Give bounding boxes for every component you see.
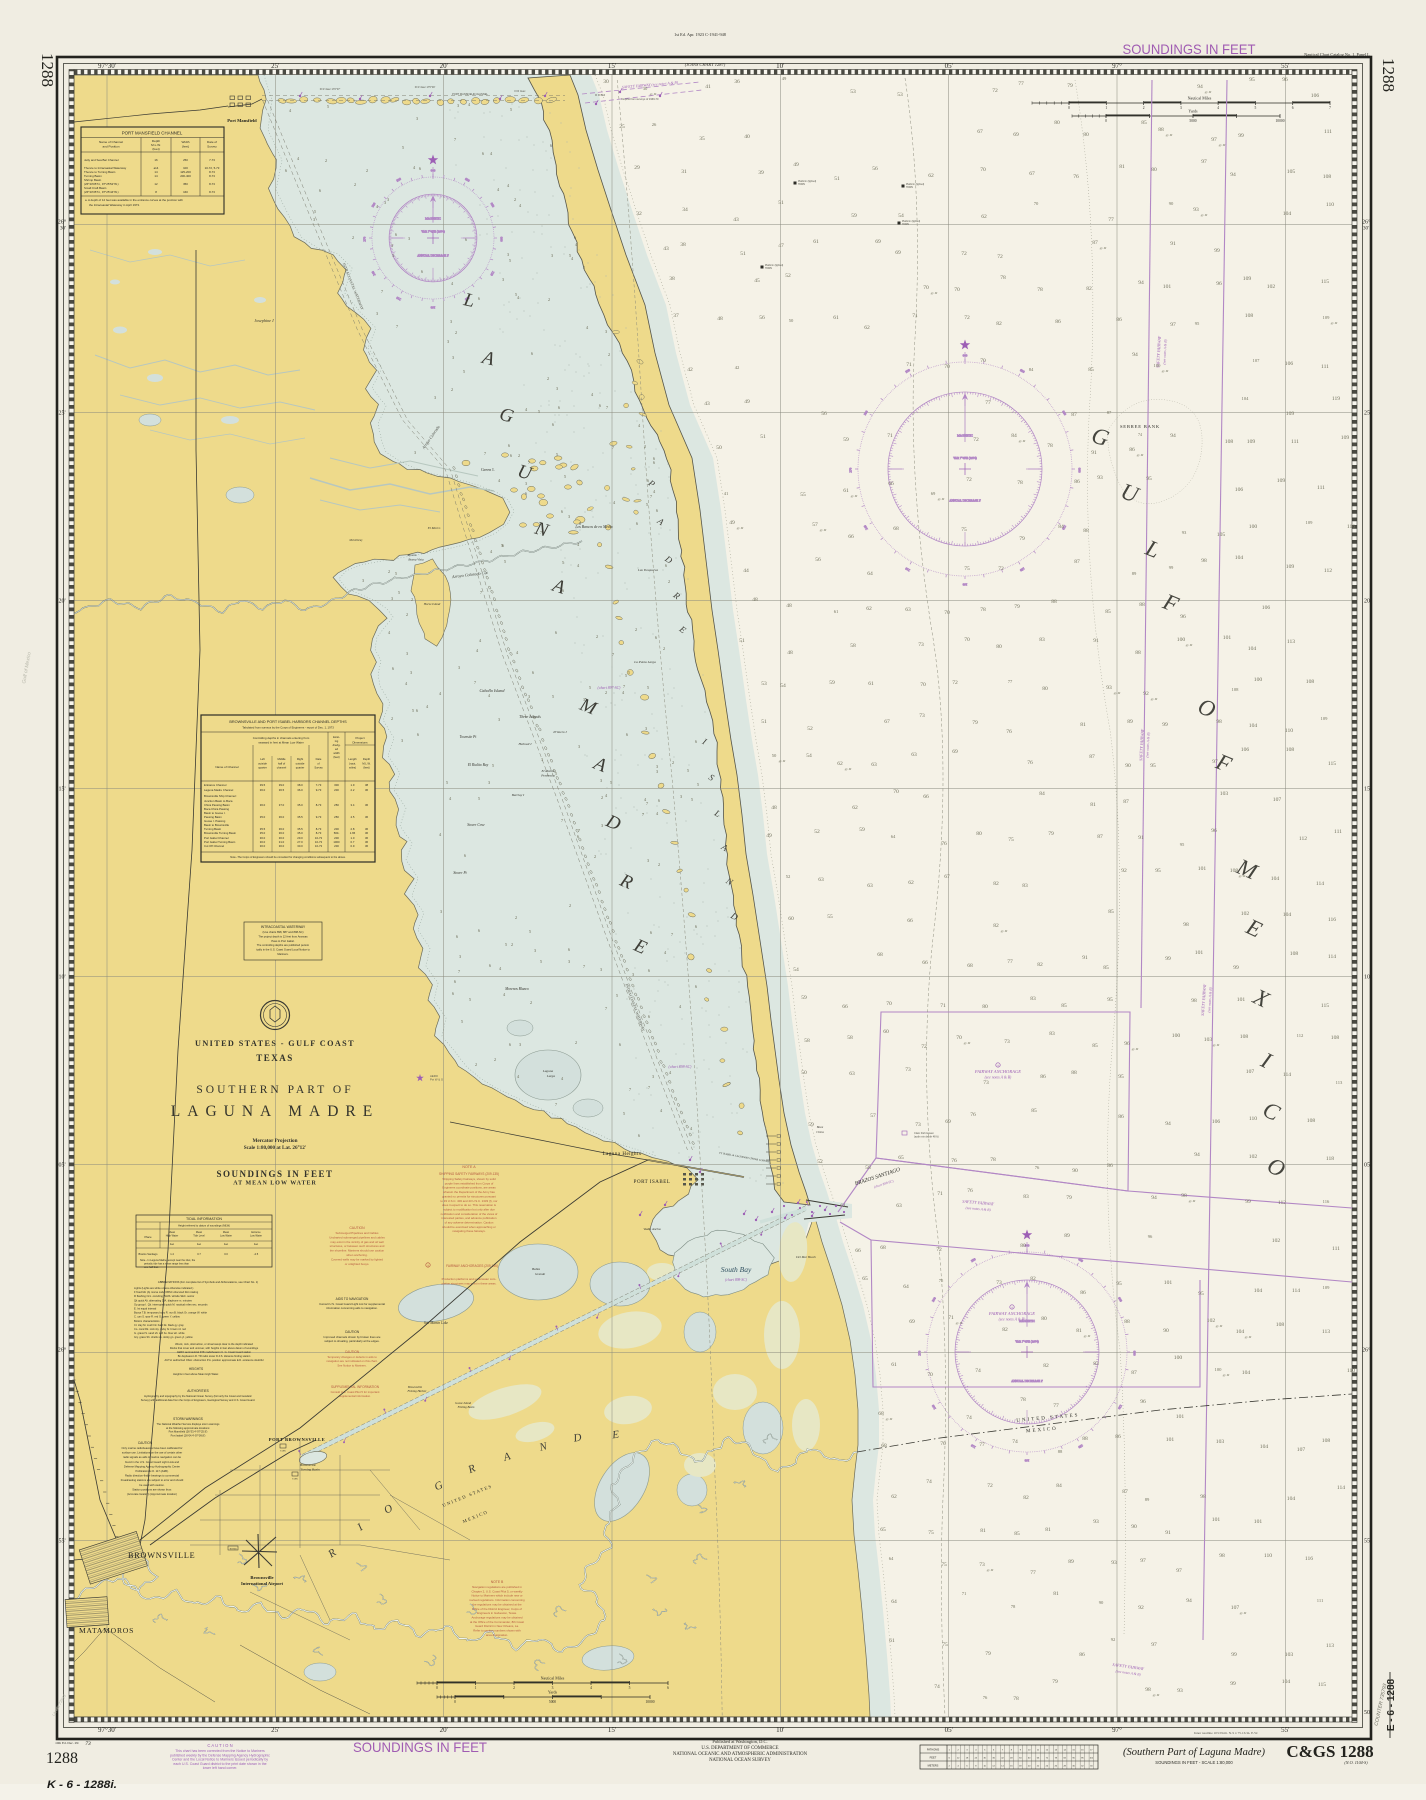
svg-text:1: 1	[1105, 106, 1107, 110]
svg-text:(chart 898-SC): (chart 898-SC)	[725, 1278, 747, 1282]
svg-text:(see notes A & B): (see notes A & B)	[985, 1076, 1012, 1080]
svg-text:96: 96	[1211, 828, 1217, 834]
svg-text:115: 115	[1328, 761, 1336, 767]
svg-text:12: 12	[154, 182, 158, 186]
svg-text:35.5: 35.5	[297, 815, 303, 819]
svg-text:108: 108	[1331, 1035, 1340, 1041]
svg-text:54: 54	[806, 753, 812, 759]
svg-text:feet: feet	[224, 1243, 228, 1246]
svg-text:78: 78	[1011, 1604, 1016, 1609]
svg-text:gy M: gy M	[845, 767, 852, 771]
svg-text:109: 109	[1247, 439, 1256, 445]
svg-text:The controlling depths are pub: The controlling depths are published per…	[257, 943, 310, 947]
svg-text:Publication H.O. 117 (A&B).: Publication H.O. 117 (A&B).	[135, 1469, 168, 1473]
svg-text:88: 88	[1071, 1070, 1077, 1076]
svg-text:87: 87	[1123, 799, 1129, 805]
svg-text:PORT MANSFIELD CHANNEL: PORT MANSFIELD CHANNEL	[452, 92, 488, 96]
svg-text:116: 116	[1347, 524, 1355, 530]
svg-text:104: 104	[1235, 555, 1244, 561]
svg-text:108: 108	[1245, 313, 1254, 319]
svg-text:43: 43	[733, 217, 739, 223]
svg-text:112: 112	[1324, 568, 1332, 574]
svg-text:103: 103	[1216, 1439, 1225, 1445]
svg-text:95: 95	[1155, 868, 1161, 874]
svg-text:76: 76	[970, 1112, 976, 1118]
svg-text:101: 101	[1254, 1519, 1263, 1525]
svg-text:60: 60	[788, 916, 794, 922]
svg-text:67: 67	[944, 874, 950, 880]
svg-text:BROWNSVILLE: BROWNSVILLE	[128, 1551, 195, 1560]
svg-text:82: 82	[1043, 1363, 1049, 1369]
svg-text:88: 88	[1124, 1319, 1130, 1325]
svg-text:72: 72	[921, 1044, 927, 1050]
svg-text:Cut Off Channel: Cut Off Channel	[204, 844, 224, 848]
svg-text:78: 78	[1037, 287, 1043, 293]
svg-text:outside: outside	[258, 761, 267, 765]
svg-text:110: 110	[1347, 1368, 1355, 1374]
svg-text:72: 72	[964, 315, 970, 321]
svg-text:94: 94	[1230, 172, 1236, 178]
svg-text:Townsite Pt: Townsite Pt	[460, 735, 478, 739]
svg-text:83: 83	[1030, 996, 1036, 1002]
svg-text:54: 54	[793, 967, 799, 973]
svg-text:36: 36	[365, 788, 369, 792]
svg-text:81: 81	[980, 1528, 986, 1534]
svg-text:G. gravel S. sand sft: G. gravel S. sand sft. soft bu. blue wh.…	[134, 1331, 185, 1335]
svg-text:106: 106	[1235, 487, 1244, 493]
svg-text:gy M: gy M	[851, 494, 858, 498]
svg-text:72: 72	[992, 88, 998, 94]
svg-text:55': 55'	[1281, 1726, 1289, 1734]
svg-text:82: 82	[1086, 286, 1092, 292]
svg-text:Hebnail I: Hebnail I	[518, 742, 533, 746]
svg-text:30': 30'	[60, 227, 66, 232]
svg-text:2: 2	[1143, 106, 1145, 110]
svg-text:79: 79	[1019, 536, 1025, 542]
svg-text:94: 94	[1197, 84, 1203, 90]
svg-text:80: 80	[1020, 1243, 1026, 1249]
svg-text:HORN: HORN	[902, 223, 909, 226]
svg-text:gy M: gy M	[1001, 929, 1008, 933]
svg-text:090: 090	[500, 237, 504, 242]
svg-text:88: 88	[1058, 1449, 1063, 1454]
svg-text:64: 64	[903, 1284, 909, 1290]
svg-text:66: 66	[842, 1004, 848, 1010]
svg-text:98: 98	[1200, 1494, 1206, 1500]
svg-text:E: E	[611, 1429, 620, 1442]
svg-text:78: 78	[990, 1157, 996, 1163]
svg-text:99: 99	[1169, 565, 1174, 570]
svg-text:111: 111	[1321, 364, 1329, 370]
svg-text:20': 20'	[440, 1726, 448, 1734]
svg-text:Vadia Ancha: Vadia Ancha	[643, 1227, 660, 1231]
svg-text:98: 98	[1183, 922, 1189, 928]
svg-text:62: 62	[928, 173, 934, 179]
svg-text:76: 76	[951, 1158, 957, 1164]
svg-text:25': 25'	[271, 62, 279, 70]
svg-text:89: 89	[1145, 1497, 1150, 1502]
svg-text:102: 102	[1207, 1318, 1216, 1324]
svg-text:(26°33'35"N., 97°25'44"W.): (26°33'35"N., 97°25'44"W.)	[84, 190, 119, 194]
svg-text:Josephine I: Josephine I	[254, 318, 274, 323]
svg-text:High Water: High Water	[166, 1235, 179, 1238]
svg-text:Tabulated from surveys by the: Tabulated from surveys by the Corps of E…	[242, 726, 334, 730]
svg-text:50: 50	[716, 445, 722, 451]
svg-text:69: 69	[909, 1319, 915, 1325]
svg-text:1288: 1288	[46, 1750, 78, 1767]
svg-text:Right: Right	[297, 757, 304, 761]
svg-text:72: 72	[997, 254, 1003, 260]
svg-text:Del Mar Beach: Del Mar Beach	[795, 1255, 816, 1259]
svg-text:63: 63	[849, 1071, 855, 1077]
svg-text:4: 4	[1217, 106, 1219, 110]
svg-text:99: 99	[1238, 133, 1244, 139]
svg-text:ANNUAL DECREASE 2': ANNUAL DECREASE 2'	[949, 498, 981, 502]
svg-text:3: 3	[1180, 106, 1182, 110]
svg-text:0.7: 0.7	[197, 1252, 201, 1256]
svg-text:67: 67	[884, 719, 890, 725]
svg-text:(naut.: (naut.	[349, 761, 356, 765]
svg-text:88: 88	[1083, 528, 1089, 534]
svg-text:70: 70	[886, 1001, 892, 1007]
svg-text:83: 83	[1049, 1031, 1055, 1037]
svg-text:111: 111	[1334, 829, 1342, 835]
svg-text:79: 79	[985, 1651, 991, 1657]
svg-text:99: 99	[1162, 722, 1168, 728]
svg-text:34: 34	[682, 207, 688, 213]
svg-text:94: 94	[1138, 280, 1144, 286]
svg-text:83: 83	[1023, 1194, 1029, 1200]
svg-text:area designation.: area designation.	[486, 1633, 508, 1637]
svg-text:87: 87	[1071, 412, 1077, 418]
svg-text:090: 090	[1133, 1351, 1137, 1356]
svg-text:ically in the U.S. Coast Guard: ically in the U.S. Coast Guard Local Not…	[256, 948, 310, 952]
svg-text:94: 94	[1186, 1598, 1192, 1604]
svg-text:A: A	[1011, 1306, 1013, 1309]
svg-text:61: 61	[843, 488, 849, 494]
svg-text:SOUTHERN PART OF: SOUTHERN PART OF	[196, 1084, 353, 1096]
svg-text:6: 6	[1292, 106, 1294, 110]
svg-text:El Rialito: El Rialito	[540, 769, 554, 773]
svg-text:70: 70	[964, 637, 970, 643]
svg-text:0: 0	[436, 1686, 438, 1690]
svg-text:73: 73	[983, 1080, 989, 1086]
svg-text:94: 94	[1165, 1121, 1171, 1127]
svg-text:62: 62	[866, 606, 872, 612]
svg-text:does it expect to do so. This: does it expect to do so. This reservatio…	[442, 1203, 496, 1207]
svg-text:35.0: 35.0	[260, 831, 266, 835]
svg-text:73: 73	[996, 1280, 1002, 1286]
svg-text:25': 25'	[58, 411, 65, 417]
svg-text:74: 74	[926, 1479, 932, 1485]
svg-text:110: 110	[1249, 1116, 1257, 1122]
svg-text:81: 81	[1119, 164, 1125, 170]
svg-text:Length: Length	[348, 757, 357, 761]
svg-text:107: 107	[1273, 797, 1282, 803]
svg-text:78: 78	[1047, 443, 1053, 449]
svg-text:Yards: Yards	[1188, 109, 1198, 114]
svg-text:109: 109	[1341, 435, 1350, 441]
svg-text:87: 87	[1092, 240, 1098, 246]
svg-text:58: 58	[804, 1038, 810, 1044]
svg-text:7: 7	[1329, 106, 1331, 110]
svg-text:107: 107	[1297, 1447, 1306, 1453]
svg-text:gy M: gy M	[1019, 439, 1026, 443]
svg-text:101: 101	[1237, 997, 1246, 1003]
svg-text:82: 82	[996, 321, 1002, 327]
svg-text:26°: 26°	[58, 219, 67, 226]
svg-text:16: 16	[154, 158, 158, 162]
svg-text:107: 107	[1246, 1069, 1255, 1075]
svg-text:15': 15'	[1364, 787, 1371, 793]
svg-text:HORN: HORN	[765, 267, 772, 270]
svg-text:114: 114	[1328, 954, 1336, 960]
svg-text:51: 51	[834, 176, 840, 182]
svg-text:gy M: gy M	[956, 1321, 963, 1325]
svg-text:109: 109	[1243, 276, 1252, 282]
svg-text:79: 79	[1066, 1195, 1072, 1201]
svg-text:90: 90	[1125, 763, 1131, 769]
svg-text:55': 55'	[58, 1539, 65, 1545]
svg-text:Brownsville Turning Basin: Brownsville Turning Basin	[204, 831, 236, 835]
svg-text:108: 108	[1240, 1034, 1249, 1040]
svg-text:HORN: HORN	[906, 186, 913, 189]
svg-text:66: 66	[923, 794, 929, 800]
svg-text:111: 111	[1317, 485, 1325, 491]
svg-text:Height referred to datum of so: Height referred to datum of soundings (M…	[178, 1224, 230, 1228]
svg-text:Barclay I: Barclay I	[512, 793, 525, 797]
svg-text:0: 0	[1068, 106, 1070, 110]
svg-text:Pvt W & G: Pvt W & G	[430, 1078, 443, 1082]
svg-text:Fl R Bell: Fl R Bell	[595, 93, 605, 97]
svg-text:or unlighted buoys.: or unlighted buoys.	[345, 1262, 370, 1266]
svg-text:98: 98	[1181, 1193, 1187, 1199]
svg-text:66: 66	[922, 960, 928, 966]
svg-text:38: 38	[669, 276, 675, 282]
svg-text:100: 100	[1177, 637, 1186, 643]
svg-text:feet: feet	[170, 1243, 174, 1246]
svg-text:56: 56	[815, 557, 821, 563]
svg-text:navigating these fairways.: navigating these fairways.	[452, 1229, 485, 1233]
svg-text:77: 77	[1018, 81, 1024, 87]
svg-text:91: 91	[1091, 450, 1097, 456]
svg-text:at the following approximate l: at the following approximate locations:	[166, 1426, 210, 1430]
svg-text:Laguna Heights: Laguna Heights	[603, 1152, 642, 1157]
svg-text:62: 62	[891, 1494, 897, 1500]
svg-text:ANNUAL DECREASE 2': ANNUAL DECREASE 2'	[417, 253, 449, 257]
svg-text:98: 98	[1216, 719, 1222, 725]
svg-text:89: 89	[1068, 1559, 1074, 1565]
svg-text:47: 47	[778, 243, 784, 249]
svg-text:gy M: gy M	[987, 1568, 994, 1572]
svg-text:100: 100	[1154, 363, 1162, 368]
svg-text:may exist in the vicinity of g: may exist in the vicinity of gas and oil…	[330, 1240, 384, 1244]
svg-text:TEXAS: TEXAS	[256, 1053, 294, 1063]
svg-text:8-73: 8-73	[316, 831, 322, 835]
svg-text:104: 104	[1249, 723, 1258, 729]
svg-text:115: 115	[1321, 1003, 1329, 1009]
svg-text:NATIONAL OCEANIC AND ATMOSPHER: NATIONAL OCEANIC AND ATMOSPHERIC ADMINIS…	[673, 1752, 808, 1757]
svg-text:subject to shoaling, particula: subject to shoaling, particularly at the…	[324, 1339, 379, 1343]
svg-text:K - 6 - 1288i.: K - 6 - 1288i.	[47, 1779, 117, 1791]
svg-text:Caballo Island: Caballo Island	[479, 688, 505, 693]
svg-text:97°: 97°	[1112, 62, 1122, 70]
svg-text:36.0: 36.0	[260, 803, 266, 807]
svg-text:(chart 897-SC): (chart 897-SC)	[598, 686, 622, 690]
svg-text:81: 81	[1045, 1527, 1051, 1533]
svg-text:39: 39	[758, 170, 764, 176]
svg-text:2: 2	[513, 1686, 515, 1690]
svg-text:70: 70	[980, 167, 986, 173]
svg-text:Grande: Grande	[535, 1272, 546, 1276]
svg-text:57: 57	[870, 1113, 876, 1119]
svg-text:Depth: Depth	[363, 757, 371, 761]
svg-text:98: 98	[1191, 998, 1197, 1004]
svg-text:57: 57	[812, 522, 818, 528]
svg-text:85: 85	[1103, 965, 1109, 971]
svg-text:105: 105	[1217, 532, 1226, 538]
svg-text:74: 74	[975, 1368, 981, 1374]
svg-text:ABBREVIATIONS (For complete l: ABBREVIATIONS (For complete list of Symb…	[158, 1280, 258, 1284]
svg-text:43: 43	[704, 401, 710, 407]
svg-text:94: 94	[1151, 1195, 1157, 1201]
svg-text:97°: 97°	[1112, 1726, 1122, 1734]
svg-text:Fl R 4sec 175°30': Fl R 4sec 175°30'	[415, 85, 436, 89]
svg-text:CAUTION: CAUTION	[349, 1226, 365, 1230]
svg-text:64: 64	[867, 571, 873, 577]
svg-text:gy M: gy M	[1137, 453, 1144, 457]
svg-text:Fishing Basin: Fishing Basin	[457, 1405, 475, 1409]
svg-text:Buoys T.B. temporary buoy: Buoys T.B. temporary buoy R. nun B. blac…	[134, 1311, 207, 1315]
svg-text:0: 0	[454, 1700, 456, 1704]
svg-text:gy M: gy M	[1189, 1199, 1196, 1203]
svg-text:39.0: 39.0	[279, 783, 285, 787]
svg-text:102: 102	[1241, 911, 1250, 917]
svg-text:70: 70	[927, 1372, 933, 1378]
svg-text:70: 70	[954, 287, 960, 293]
svg-text:48: 48	[786, 603, 792, 609]
svg-text:20': 20'	[1364, 599, 1371, 605]
svg-text:111: 111	[1291, 439, 1299, 445]
svg-text:114: 114	[1283, 1072, 1291, 1078]
svg-text:104: 104	[1287, 1496, 1296, 1502]
svg-text:68: 68	[893, 526, 899, 532]
svg-text:Controlling depths in channels: Controlling depths in channels entering …	[253, 736, 310, 740]
svg-text:76: 76	[1027, 760, 1033, 766]
svg-text:of: of	[317, 761, 319, 765]
svg-text:110: 110	[1285, 728, 1293, 734]
svg-text:60: 60	[883, 1029, 889, 1035]
svg-text:108: 108	[1276, 1322, 1285, 1328]
svg-text:70: 70	[940, 1441, 946, 1447]
svg-text:104: 104	[1283, 211, 1292, 217]
svg-text:76: 76	[1073, 174, 1079, 180]
svg-text:Defense Mapping Agency Hydrogr: Defense Mapping Agency Hydrographic Cent…	[124, 1464, 180, 1468]
svg-text:109: 109	[1321, 716, 1329, 721]
svg-text:05': 05'	[945, 62, 953, 70]
svg-text:outside: outside	[296, 761, 305, 765]
svg-text:86: 86	[1129, 447, 1135, 453]
svg-text:74: 74	[966, 1415, 972, 1421]
svg-text:gy M: gy M	[1132, 1047, 1139, 1051]
svg-text:94: 94	[1194, 1152, 1200, 1158]
svg-text:gy M: gy M	[1084, 1334, 1091, 1338]
svg-text:Name of Channel: Name of Channel	[215, 765, 239, 769]
svg-text:55': 55'	[1364, 1539, 1371, 1545]
svg-text:101: 101	[1223, 635, 1232, 641]
svg-text:gy M: gy M	[1205, 90, 1212, 94]
svg-text:93: 93	[1182, 530, 1187, 535]
svg-text:(Southern Part of Laguna Madre: (Southern Part of Laguna Madre)	[1123, 1747, 1265, 1758]
svg-text:105: 105	[1287, 169, 1296, 175]
svg-text:56: 56	[821, 411, 827, 417]
svg-text:49: 49	[744, 399, 750, 405]
svg-text:Wreck, rock, obstruction, or s: Wreck, rock, obstruction, or shoal swept…	[175, 1342, 253, 1346]
svg-text:97: 97	[1176, 1568, 1182, 1574]
svg-text:69: 69	[945, 1119, 951, 1125]
svg-text:115: 115	[1318, 1682, 1326, 1688]
svg-text:87: 87	[1107, 410, 1112, 415]
svg-text:25': 25'	[1364, 411, 1371, 417]
svg-text:gy M: gy M	[1151, 697, 1158, 701]
svg-text:100: 100	[1254, 677, 1263, 683]
svg-text:14: 14	[154, 174, 158, 178]
svg-text:65: 65	[898, 1155, 904, 1161]
svg-text:-2.5: -2.5	[254, 1252, 259, 1256]
svg-text:McGilbray: McGilbray	[348, 538, 363, 542]
svg-text:59: 59	[851, 213, 857, 219]
svg-text:68: 68	[880, 1245, 886, 1251]
svg-text:116: 116	[1305, 1556, 1313, 1562]
svg-text:CAUTION: CAUTION	[138, 1441, 153, 1445]
svg-text:86: 86	[1040, 1074, 1046, 1080]
svg-text:one-half foot.: one-half foot.	[144, 1266, 159, 1269]
svg-text:70: 70	[920, 682, 926, 688]
svg-text:67: 67	[1029, 171, 1035, 177]
svg-text:70: 70	[944, 364, 950, 370]
svg-text:miles): miles)	[349, 766, 356, 770]
svg-text:104: 104	[1242, 396, 1250, 401]
svg-text:Project: Project	[356, 736, 365, 740]
svg-text:NOTE B: NOTE B	[491, 1580, 504, 1584]
svg-text:72: 72	[966, 477, 972, 483]
svg-text:97: 97	[1212, 759, 1218, 765]
svg-text:97°30': 97°30'	[98, 62, 116, 70]
svg-text:104: 104	[1242, 1370, 1251, 1376]
svg-text:Stover Cove: Stover Cove	[467, 823, 485, 827]
svg-text:89: 89	[1132, 571, 1137, 576]
svg-text:Brownsville: Brownsville	[300, 1463, 317, 1467]
svg-text:Buena Vista: Buena Vista	[408, 558, 424, 562]
svg-text:82: 82	[1002, 1327, 1008, 1333]
svg-text:94: 94	[1170, 433, 1176, 439]
svg-text:101: 101	[1198, 866, 1207, 872]
svg-text:62: 62	[981, 214, 987, 220]
svg-text:95: 95	[1180, 842, 1185, 847]
svg-text:dredg-: dredg-	[333, 743, 341, 747]
svg-text:49: 49	[766, 833, 772, 839]
svg-text:42: 42	[687, 367, 693, 373]
svg-text:El Rialito Bay: El Rialito Bay	[467, 763, 489, 767]
svg-text:C&GS 1288: C&GS 1288	[1286, 1742, 1373, 1761]
svg-text:112: 112	[1278, 1200, 1286, 1206]
svg-text:(feet): (feet)	[182, 145, 189, 149]
svg-text:gy M: gy M	[737, 526, 744, 530]
svg-text:20': 20'	[440, 62, 448, 70]
svg-text:112: 112	[1299, 836, 1307, 842]
svg-text:71: 71	[948, 1315, 954, 1321]
svg-text:purple lines established from: purple lines established from Corps of	[445, 1181, 494, 1185]
